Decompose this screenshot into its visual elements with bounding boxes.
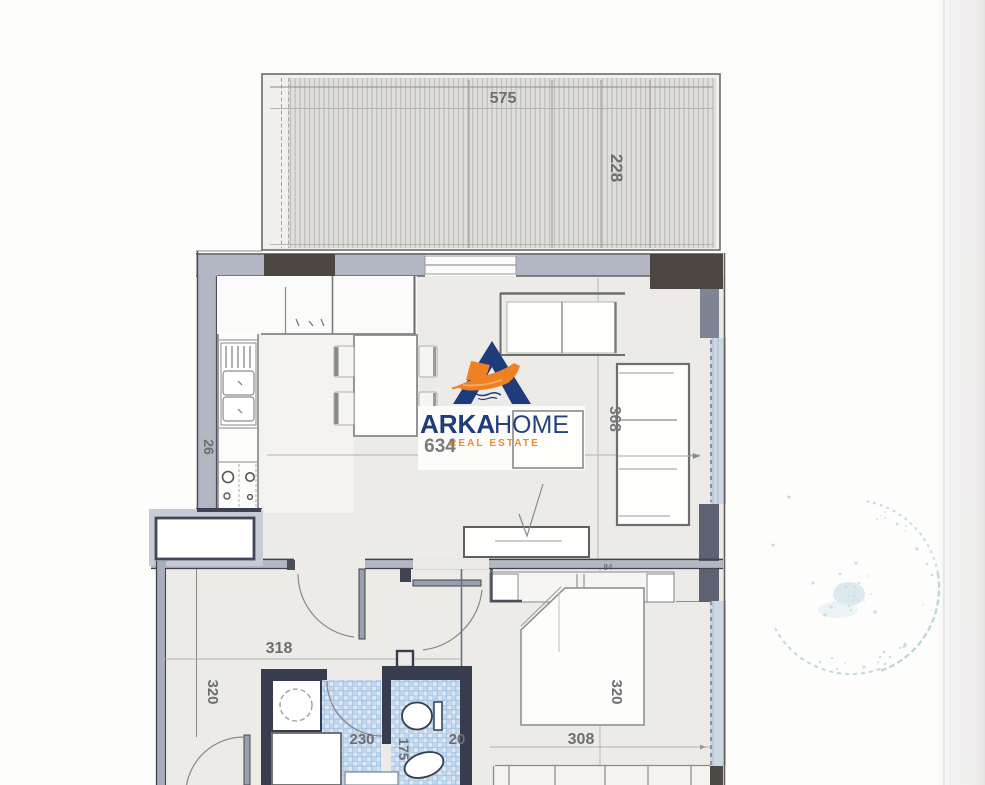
svg-text:634: 634 <box>424 436 456 457</box>
svg-text:228: 228 <box>607 154 626 182</box>
svg-text:ARKA: ARKA <box>420 409 495 439</box>
svg-text:320: 320 <box>608 679 625 704</box>
svg-text:320: 320 <box>204 679 221 704</box>
svg-text:575: 575 <box>490 90 517 107</box>
svg-text:368: 368 <box>606 406 623 432</box>
svg-text:175: 175 <box>396 738 411 761</box>
svg-text:230: 230 <box>349 731 374 748</box>
svg-text:20: 20 <box>449 731 466 748</box>
svg-text:318: 318 <box>266 640 293 657</box>
svg-text:308: 308 <box>568 731 595 748</box>
svg-text:REAL ESTATE: REAL ESTATE <box>449 438 540 449</box>
svg-text:HOME: HOME <box>494 411 569 439</box>
svg-text:84: 84 <box>604 563 613 572</box>
svg-text:26: 26 <box>201 439 217 455</box>
